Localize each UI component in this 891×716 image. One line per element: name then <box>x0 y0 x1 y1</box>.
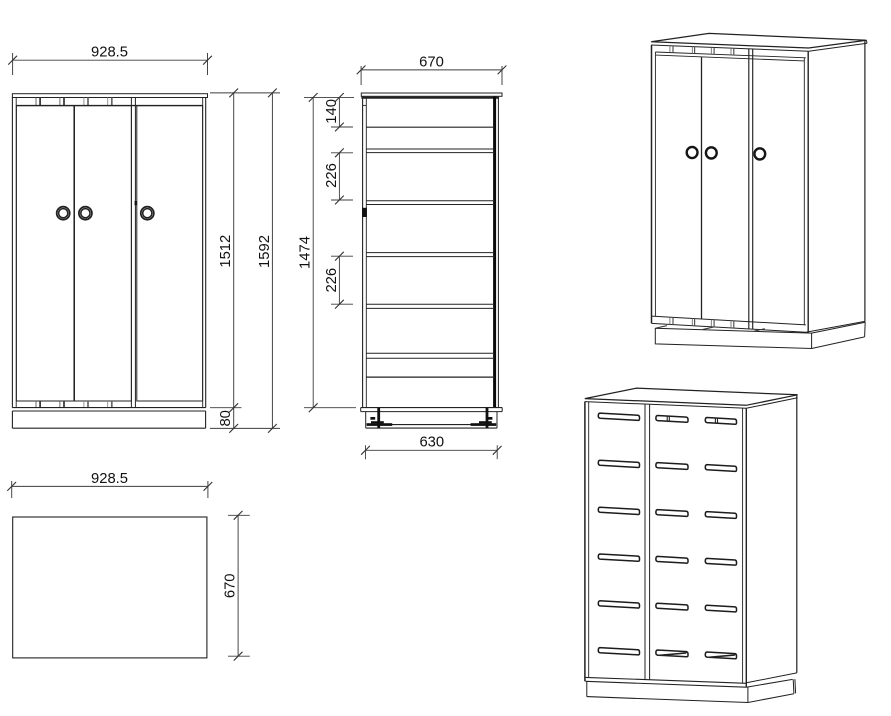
svg-text:226: 226 <box>324 163 340 188</box>
svg-text:80: 80 <box>218 410 234 426</box>
svg-text:630: 630 <box>419 435 444 451</box>
svg-text:140: 140 <box>324 99 340 124</box>
svg-text:928.5: 928.5 <box>91 471 128 487</box>
svg-text:1474: 1474 <box>298 236 314 269</box>
svg-text:928.5: 928.5 <box>91 45 128 61</box>
svg-text:670: 670 <box>223 573 239 598</box>
svg-text:226: 226 <box>324 268 340 293</box>
svg-text:1512: 1512 <box>218 235 234 268</box>
svg-text:1592: 1592 <box>257 235 273 268</box>
svg-text:670: 670 <box>419 54 444 70</box>
